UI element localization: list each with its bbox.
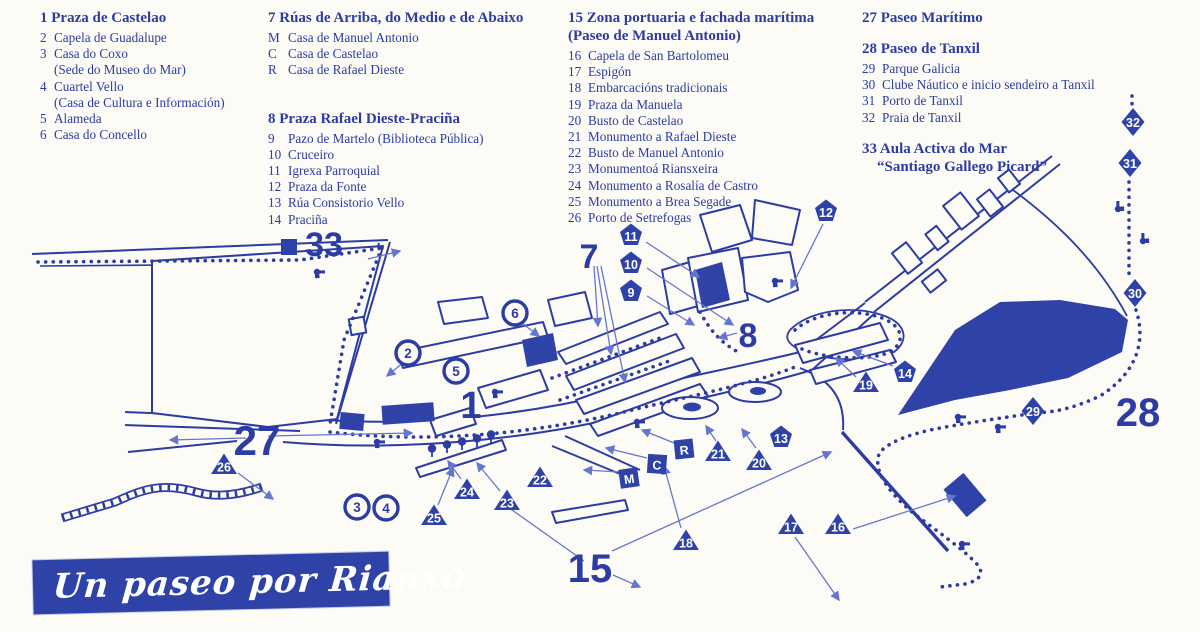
causeway-path: [62, 487, 262, 518]
legend-item: 3Casa do Coxo: [40, 46, 265, 62]
legend-item: (Casa de Cultura e Información): [40, 95, 265, 111]
brochure-map-page: 17815272833 2345691011121314MCR161718192…: [0, 0, 1200, 632]
legend-item: 31Porto de Tanxil: [862, 93, 1172, 109]
legend-group: 8 Praza Rafael Dieste-Praciña9Pazo de Ma…: [268, 111, 560, 228]
legend-column-2: 7 Rúas de Arriba, do Medio e de AbaixoMC…: [268, 10, 560, 228]
map-marker-29: 29: [1022, 397, 1045, 425]
map-marker-22: 22: [527, 467, 553, 488]
legend-item: 22Busto de Manuel Antonio: [568, 145, 863, 161]
tree-icon: [487, 430, 495, 443]
pointing-hand-icon: [1115, 201, 1124, 212]
map-label-33: 33: [305, 226, 343, 264]
marker-number: 25: [427, 512, 441, 526]
legend-item: 13Rúa Consistorio Vello: [268, 195, 560, 211]
map-marker-18: 18: [673, 530, 699, 551]
marker-number: 4: [382, 501, 390, 516]
map-marker-11: 11: [620, 224, 642, 246]
pointing-hand-icon: [955, 414, 966, 423]
map-label-1: 1: [460, 385, 481, 427]
legend-column-4: 27 Paseo Marítimo28 Paseo de Tanxil29Par…: [862, 10, 1172, 179]
map-marker-23: 23: [494, 490, 520, 511]
legend-column-3: 15 Zona portuaria e fachada marítima(Pas…: [568, 10, 863, 226]
legend-item: 17Espigón: [568, 64, 863, 80]
tree-icon: [428, 444, 436, 457]
marker-number: 3: [353, 500, 361, 515]
map-marker-16: 16: [825, 514, 851, 535]
map-marker-17: 17: [778, 514, 804, 535]
tree-icon: [458, 437, 466, 450]
marker-number: 19: [859, 379, 873, 393]
map-marker-C: C: [647, 454, 667, 474]
map-marker-R: R: [674, 439, 695, 460]
map-label-8: 8: [739, 317, 758, 355]
map-label-7: 7: [580, 238, 599, 276]
marker-number: 23: [500, 497, 514, 511]
marker-number: 11: [624, 230, 637, 244]
legend-group: 28 Paseo de Tanxil29Parque Galicia30Club…: [862, 41, 1172, 126]
marker-number: 6: [511, 306, 519, 321]
legend-item: (Sede do Museo do Mar): [40, 62, 265, 78]
pointing-hand-icon: [374, 439, 385, 448]
legend-group: 27 Paseo Marítimo: [862, 10, 1172, 26]
pointing-hand-icon: [1140, 233, 1149, 244]
marker-number: 10: [624, 258, 638, 272]
marker-number: 5: [452, 364, 460, 379]
marker-number: 21: [711, 448, 725, 462]
marker-number: R: [679, 443, 689, 458]
map-marker-M: M: [618, 467, 639, 488]
legend-group-subtitle: (Paseo de Manuel Antonio): [568, 28, 863, 44]
marker-number: 13: [774, 432, 788, 446]
legend-item: 14Praciña: [268, 212, 560, 228]
marker-number: 22: [533, 474, 547, 488]
legend-item: 20Busto de Castelao: [568, 113, 863, 129]
marker-number: 17: [784, 521, 798, 535]
marker-number: 20: [752, 457, 766, 471]
legend-item: 9Pazo de Martelo (Biblioteca Pública): [268, 131, 560, 147]
map-marker-19: 19: [853, 372, 879, 393]
map-marker-6: 6: [503, 301, 527, 325]
legend-item: 11Igrexa Parroquial: [268, 163, 560, 179]
map-marker-24: 24: [454, 479, 480, 500]
marker-number: C: [652, 458, 662, 473]
legend-item: 26Porto de Setrefogas: [568, 210, 863, 226]
map-marker-4: 4: [374, 496, 398, 520]
legend-item: 6Casa do Concello: [40, 127, 265, 143]
legend-item: 18Embarcacións tradicionais: [568, 80, 863, 96]
map-marker-5: 5: [444, 359, 468, 383]
legend-group: 1 Praza de Castelao2Capela de Guadalupe3…: [40, 10, 265, 143]
marker-number: 9: [628, 286, 635, 300]
legend-item: 32Praia de Tanxil: [862, 110, 1172, 126]
marker-number: M: [623, 472, 635, 487]
legend-group: 33 Aula Activa do Mar “Santiago Gallego …: [862, 141, 1172, 175]
marker-number: 24: [460, 486, 474, 500]
legend-item: 25Monumento a Brea Segade: [568, 194, 863, 210]
legend-item: 23Monumentoá Riansxeira: [568, 161, 863, 177]
legend-item: 10Cruceiro: [268, 147, 560, 163]
legend-group: 15 Zona portuaria e fachada marítima(Pas…: [568, 10, 863, 226]
map-label-28: 28: [1116, 391, 1161, 435]
legend-item: 19Praza da Manuela: [568, 97, 863, 113]
map-marker-10: 10: [620, 252, 642, 274]
map-marker-21: 21: [705, 441, 731, 462]
map-marker-30: 30: [1124, 279, 1147, 307]
legend-group-title: 7 Rúas de Arriba, do Medio e de Abaixo: [268, 10, 560, 26]
legend-item: CCasa de Castelao: [268, 46, 560, 62]
marker-number: 2: [404, 346, 412, 361]
legend-item: 2Capela de Guadalupe: [40, 30, 265, 46]
tree-icon: [443, 440, 451, 453]
legend-item: 30Clube Náutico e inicio sendeiro a Tanx…: [862, 77, 1172, 93]
map-marker-20: 20: [746, 450, 772, 471]
legend-item: 24Monumento a Rosalía de Castro: [568, 178, 863, 194]
map-marker-25: 25: [421, 505, 447, 526]
legend-group-title: 33 Aula Activa do Mar: [862, 141, 1172, 157]
marker-number: 14: [898, 367, 912, 381]
legend-group-subtitle: “Santiago Gallego Picard”: [862, 159, 1172, 175]
legend-item: MCasa de Manuel Antonio: [268, 30, 560, 46]
title-banner: Un paseo por Rianxo: [32, 552, 389, 615]
map-marker-3: 3: [345, 495, 369, 519]
map-marker-9: 9: [620, 280, 642, 302]
map-marker-13: 13: [770, 426, 792, 448]
legend-column-1: 1 Praza de Castelao2Capela de Guadalupe3…: [40, 10, 265, 143]
legend-item: 4Cuartel Vello: [40, 79, 265, 95]
legend-item: 5Alameda: [40, 111, 265, 127]
marker-number: 29: [1026, 405, 1040, 419]
map-label-27: 27: [234, 417, 281, 464]
map-marker-2: 2: [396, 341, 420, 365]
pointing-hand-icon: [995, 424, 1006, 433]
legend-item: 12Praza da Fonte: [268, 179, 560, 195]
legend-group-title: 1 Praza de Castelao: [40, 10, 265, 26]
pointing-hand-icon: [959, 541, 970, 550]
legend-group-title: 27 Paseo Marítimo: [862, 10, 1172, 26]
marker-number: 26: [217, 461, 231, 475]
map-marker-33-square: [281, 239, 297, 255]
marker-number: 30: [1128, 287, 1142, 301]
legend-group: 7 Rúas de Arriba, do Medio e de AbaixoMC…: [268, 10, 560, 79]
tree-icon: [473, 434, 481, 447]
legend-item: RCasa de Rafael Dieste: [268, 62, 560, 78]
map-label-15: 15: [568, 547, 613, 591]
map-marker-14: 14: [894, 361, 916, 383]
legend-item: 29Parque Galicia: [862, 61, 1172, 77]
legend-group-title: 8 Praza Rafael Dieste-Praciña: [268, 111, 560, 127]
marker-number: 16: [831, 521, 845, 535]
marker-number: 18: [679, 537, 693, 551]
legend-item: 16Capela de San Bartolomeu: [568, 48, 863, 64]
legend-group-title: 15 Zona portuaria e fachada marítima: [568, 10, 863, 26]
legend-group-title: 28 Paseo de Tanxil: [862, 41, 1172, 57]
legend-item: 21Monumento a Rafael Dieste: [568, 129, 863, 145]
